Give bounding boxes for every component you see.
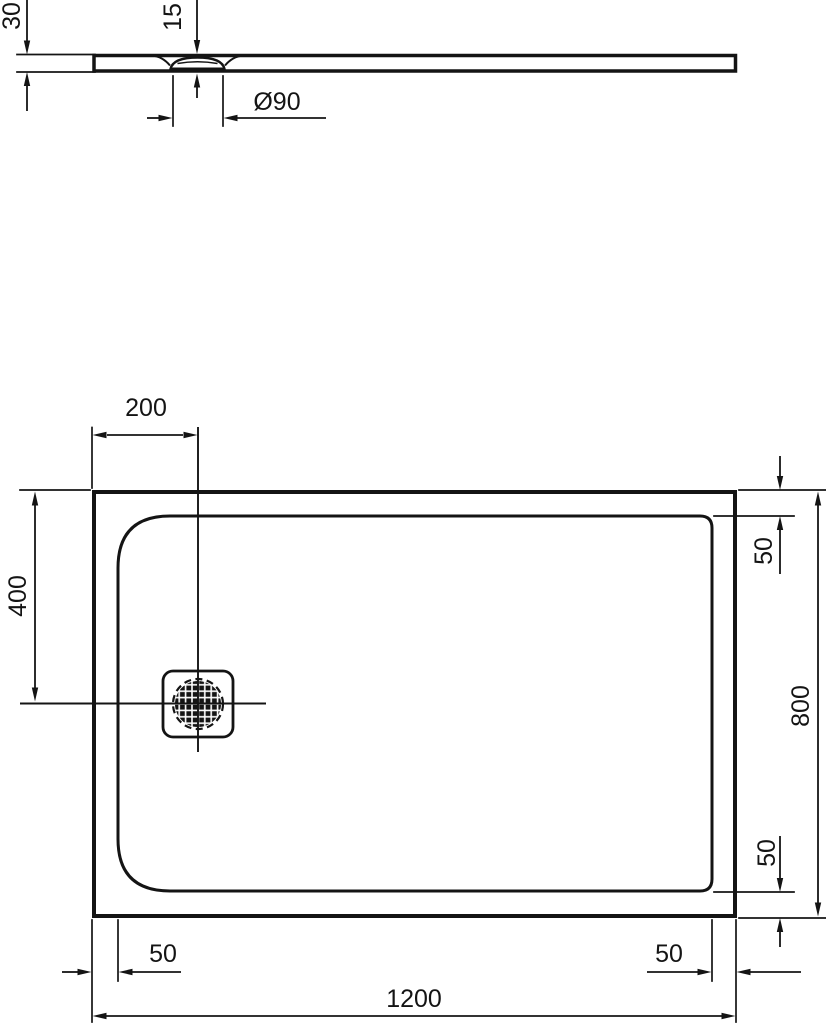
dim-tray-width-label: 800: [787, 685, 815, 727]
section-view: 30 15 Ø90: [0, 0, 736, 126]
dim-drain-diameter: Ø90: [147, 76, 326, 126]
dim-thickness: 30: [0, 0, 95, 111]
dim-thickness-label: 30: [0, 2, 26, 30]
dim-inset-top-right-label: 50: [750, 537, 778, 565]
dim-drain-offset-x: 200: [92, 394, 198, 488]
dim-drain-offset-y: 400: [4, 490, 90, 702]
dim-recess-depth-label: 15: [159, 3, 187, 31]
dim-inset-bottom-right-horizontal-label: 50: [655, 940, 683, 968]
dim-inset-bottom-right-horizontal: 50: [647, 940, 801, 975]
dim-inset-top-right: 50: [750, 456, 783, 574]
dim-drain-diameter-label: Ø90: [253, 88, 300, 116]
dim-tray-length: 1200: [93, 985, 736, 1019]
plan-view: 200 400 50 80: [4, 394, 826, 1022]
dim-inset-bottom-right-vertical-label: 50: [753, 839, 781, 867]
dim-drain-offset-x-label: 200: [125, 394, 167, 422]
dim-inset-bottom-left: 50: [62, 940, 181, 975]
shower-tray-drawing: 30 15 Ø90: [0, 0, 826, 1024]
dim-inset-bottom-left-label: 50: [149, 940, 177, 968]
dim-drain-offset-y-label: 400: [4, 575, 32, 617]
dim-recess-depth: 15: [159, 0, 200, 98]
dim-tray-width: 800: [787, 492, 821, 917]
technical-drawing-canvas: 30 15 Ø90: [0, 0, 826, 1024]
dim-tray-length-label: 1200: [386, 985, 442, 1013]
